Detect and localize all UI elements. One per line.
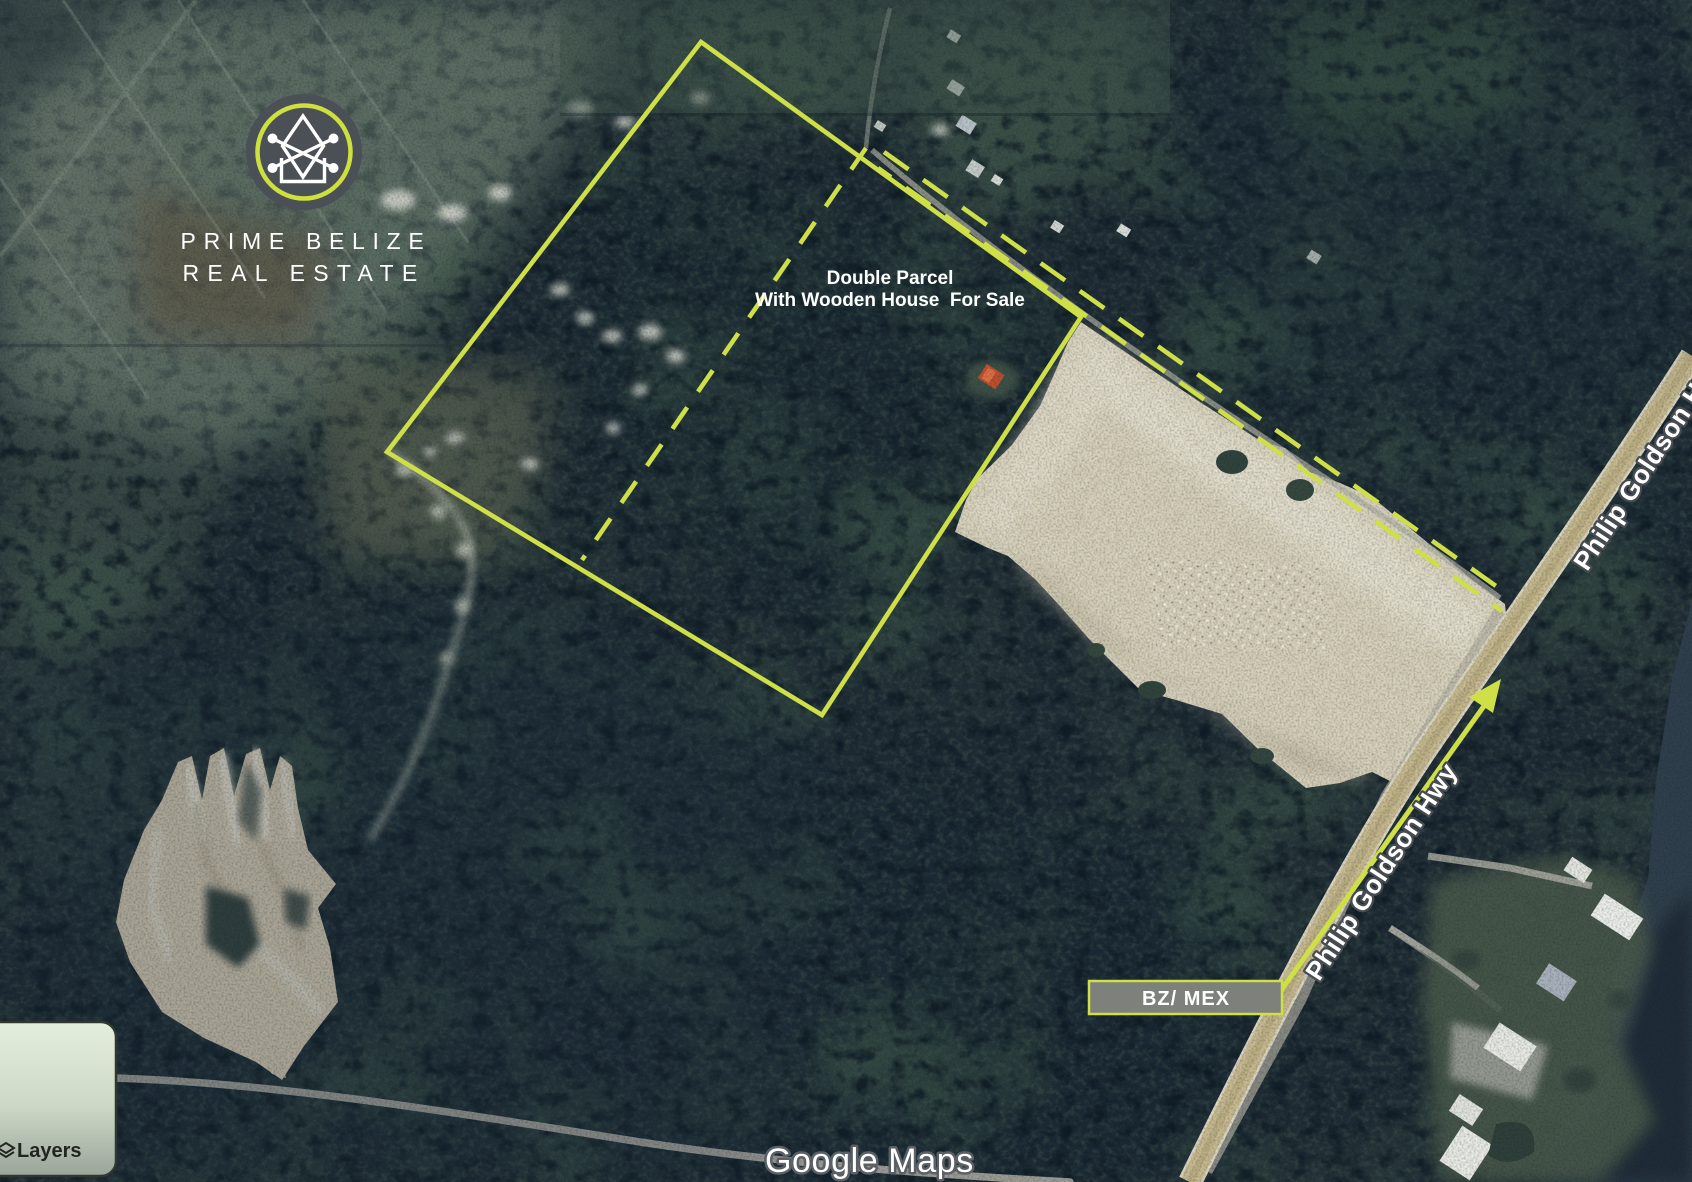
svg-text:Layers: Layers (17, 1140, 82, 1162)
svg-text:Double Parcel: Double Parcel (827, 268, 954, 289)
svg-text:REAL ESTATE: REAL ESTATE (183, 260, 426, 286)
svg-text:With Wooden House For Sale: With Wooden House For Sale (755, 290, 1025, 311)
svg-text:Google Maps: Google Maps (765, 1142, 974, 1180)
svg-text:BZ/ MEX: BZ/ MEX (1142, 988, 1230, 1010)
svg-text:PRIME BELIZE: PRIME BELIZE (181, 228, 432, 254)
